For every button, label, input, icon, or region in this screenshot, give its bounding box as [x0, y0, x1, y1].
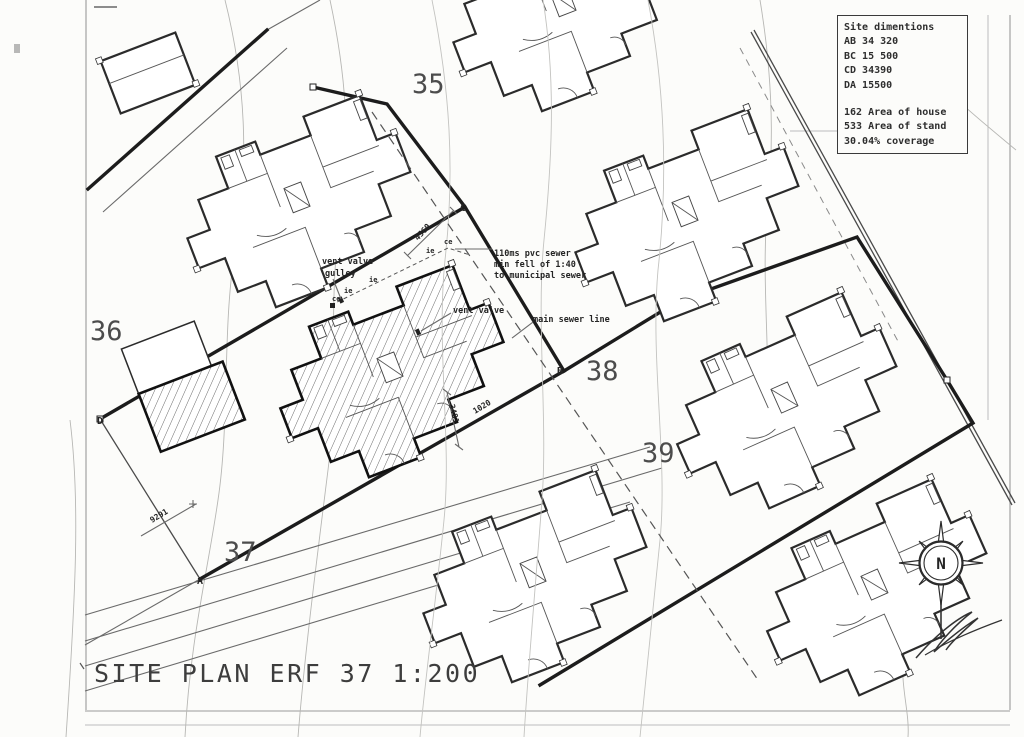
dim-line-ab: AB 34 320: [844, 35, 967, 49]
corner-b: B: [557, 366, 563, 377]
vent-valve-label-1: vent valve: [322, 257, 373, 267]
area-of-house-line: 162 Area of house: [844, 106, 967, 120]
house-plan-partial-top: [421, 0, 707, 137]
erf-label-37: 37: [224, 537, 257, 568]
sewer-note-line-1: 110ms pvc sewer: [494, 249, 571, 259]
erf-label-38: 38: [586, 356, 619, 387]
erf-label-36: 36: [90, 316, 123, 347]
north-label: N: [936, 554, 946, 573]
gulley-label: gulley: [325, 269, 356, 279]
corner-a: A: [197, 576, 203, 587]
drawing-title: SITE PLAN ERF 37 1:200: [94, 659, 480, 688]
dim-line-cd: CD 34390: [844, 64, 967, 78]
erf-label-35: 35: [412, 69, 445, 100]
area-of-stand-line: 533 Area of stand: [844, 120, 967, 134]
ce-marker-label: ce: [332, 295, 340, 303]
title-tick-mark: [80, 663, 84, 669]
ie-marker-label: ie: [369, 276, 377, 284]
erf-label-39: 39: [642, 438, 675, 469]
vent-valve-label-2: vent valve: [453, 306, 504, 316]
title-block: Site dimentions AB 34 320 BC 15 500 CD 3…: [837, 15, 968, 154]
dim-4560: 4560: [413, 222, 433, 242]
coverage-line: 30.04% coverage: [844, 135, 967, 149]
dim-9291: 9291: [148, 507, 169, 525]
sewer-note-line-3: to municipal sewer: [494, 270, 586, 281]
dim-line-da: DA 15500: [844, 79, 967, 93]
main-sewer-label: main sewer line: [533, 314, 610, 325]
site-plan-sheet: N 35 36 37 38 39 A B C D vent valve gull…: [0, 0, 1024, 737]
title-block-heading: Site dimentions: [844, 21, 967, 35]
ie-marker-label: ie: [426, 247, 434, 255]
outbuilding-erf36: [121, 317, 244, 452]
sewer-note-line-2: min fell of 1:40: [494, 259, 576, 270]
corner-d: D: [97, 416, 103, 427]
ie-marker-label: ie: [344, 287, 352, 295]
dim-line-bc: BC 15 500: [844, 50, 967, 64]
corner-c: C: [460, 203, 466, 214]
ce-marker-label: ce: [444, 238, 452, 246]
